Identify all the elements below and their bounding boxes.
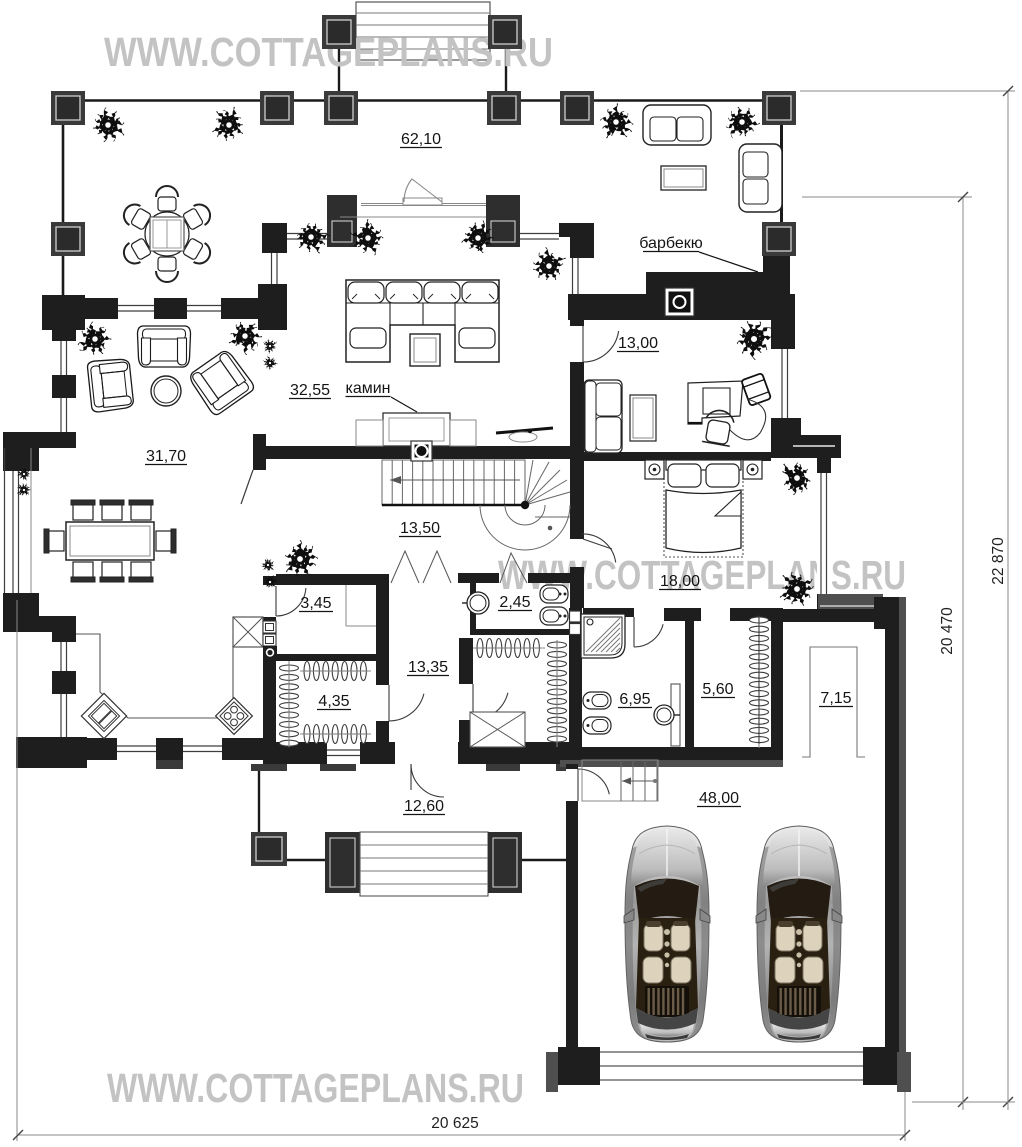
svg-text:4,35: 4,35 — [318, 693, 349, 710]
svg-text:12,60: 12,60 — [404, 798, 444, 815]
svg-text:камин: камин — [345, 380, 390, 397]
svg-text:5,60: 5,60 — [702, 681, 733, 698]
svg-text:48,00: 48,00 — [699, 790, 739, 807]
svg-text:22 870: 22 870 — [990, 537, 1007, 585]
svg-text:31,70: 31,70 — [146, 448, 186, 465]
svg-text:7,15: 7,15 — [820, 690, 851, 707]
svg-text:32,55: 32,55 — [290, 382, 330, 399]
svg-text:62,10: 62,10 — [401, 131, 441, 148]
svg-text:18,00: 18,00 — [660, 573, 700, 590]
svg-text:13,00: 13,00 — [618, 335, 658, 352]
svg-text:6,95: 6,95 — [619, 691, 650, 708]
svg-text:барбекю: барбекю — [639, 235, 702, 252]
svg-text:2,45: 2,45 — [499, 594, 530, 611]
svg-text:13,35: 13,35 — [408, 659, 448, 676]
svg-text:20 470: 20 470 — [939, 607, 956, 655]
svg-text:13,50: 13,50 — [400, 520, 440, 537]
svg-text:20 625: 20 625 — [431, 1115, 478, 1132]
svg-text:3,45: 3,45 — [300, 595, 331, 612]
svg-text:WWW.COTTAGEPLANS.RU: WWW.COTTAGEPLANS.RU — [107, 1065, 524, 1111]
